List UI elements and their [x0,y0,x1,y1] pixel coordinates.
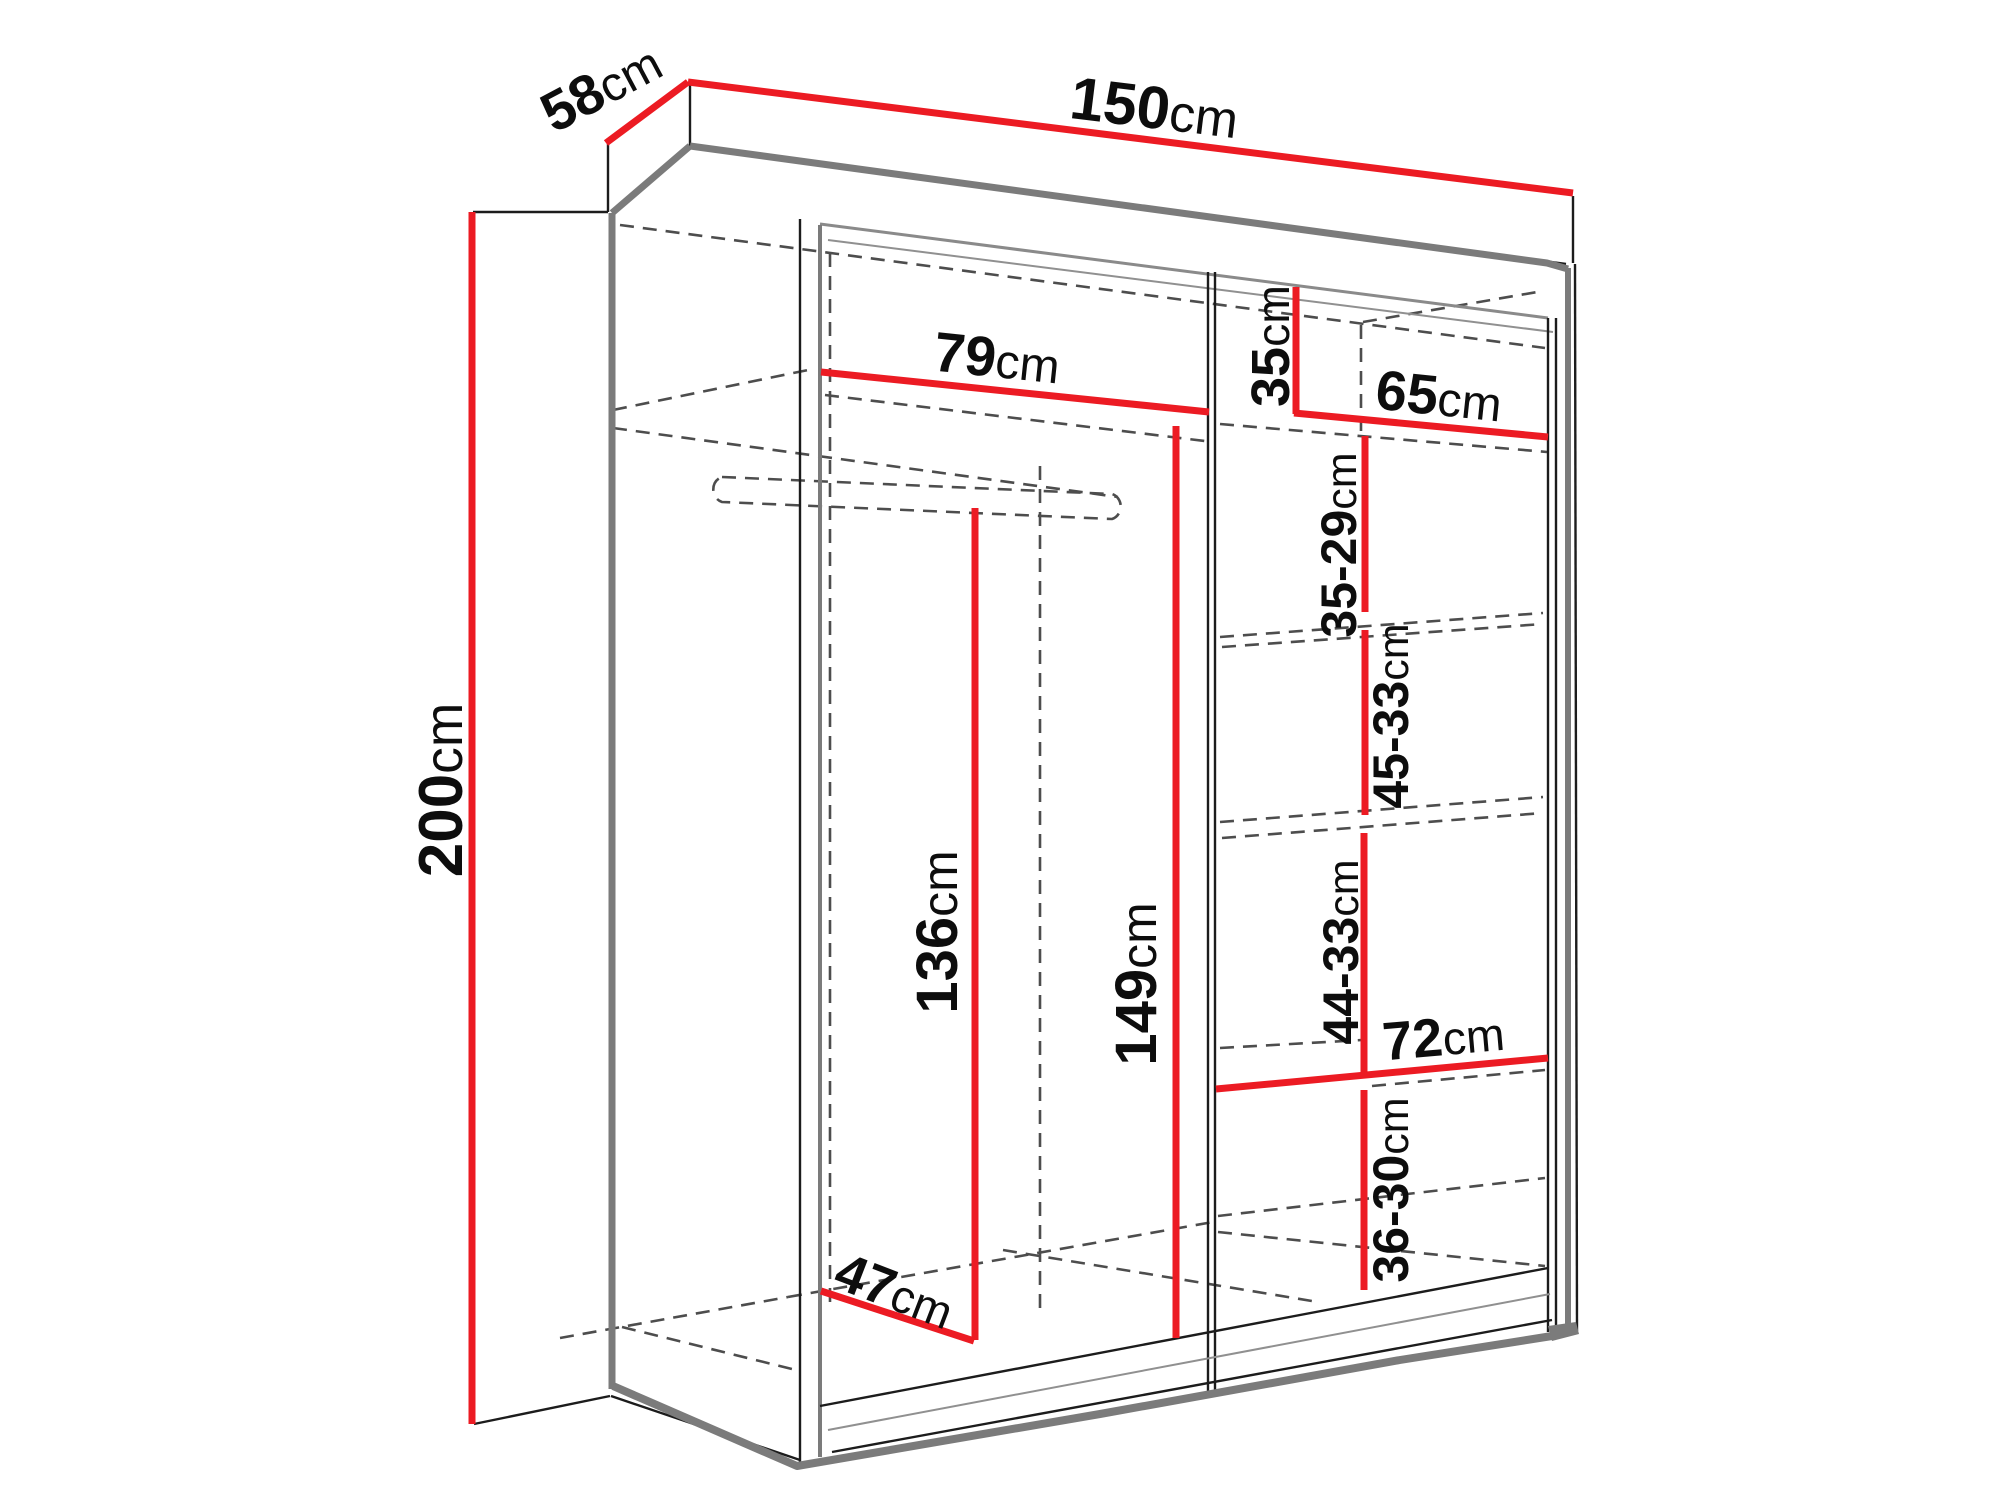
interior-ceiling-edge [820,224,1548,318]
floor-front-left-depth [622,1327,792,1369]
dim-136-label: 136cm [905,850,970,1013]
interior-back-top-line [828,240,1553,332]
left-panel-top-edge [612,146,690,213]
diagram-canvas: 58cm 150cm 200cm 79cm 35cm 65cm 35-29cm … [0,0,2000,1500]
top-shelf-front-edge [613,428,1118,497]
dim-35-29-label: 35-29cm [1311,452,1367,637]
floor-back-depth [560,1297,788,1338]
top-shelf-back-depth-edge [613,370,808,410]
right-foot [1548,1322,1579,1341]
dim-47-label: 47cm [827,1241,962,1341]
right-outer-outline [1575,264,1577,1331]
hanging-rod [713,477,1120,519]
dim-depth-label: 58cm [530,29,671,144]
wardrobe-dimension-diagram: 58cm 150cm 200cm 79cm 35cm 65cm 35-29cm … [0,0,2000,1500]
floor-mid-edge [1003,1250,1318,1302]
dim-45-33-label: 45-33cm [1363,623,1419,808]
dim-width-label: 150cm [1067,64,1243,151]
dim-36-30-label: 36-30cm [1363,1097,1419,1282]
dim-35-label: 35cm [1241,285,1301,407]
plinth-bottom-edge [832,1320,1552,1452]
dim200-connector-bottom [474,1396,610,1424]
dim-79-label: 79cm [931,320,1063,396]
top-shelf-edge-under-79 [825,395,1213,442]
shelf-b-front [1222,813,1543,838]
dim-44-33-label: 44-33cm [1313,859,1369,1044]
dim-149-label: 149cm [1104,902,1169,1065]
dimension-labels: 58cm 150cm 200cm 79cm 35cm 65cm 35-29cm … [407,29,1507,1341]
dim-height-label: 200cm [407,703,476,878]
dim-65-label: 65cm [1373,358,1505,434]
